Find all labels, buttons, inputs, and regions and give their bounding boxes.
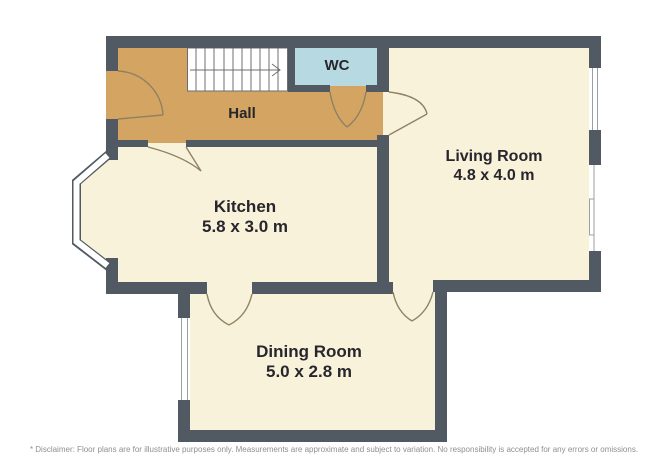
kitchen-name: Kitchen	[202, 197, 288, 217]
living-room-patio-door	[589, 165, 601, 251]
living-room-name: Living Room	[446, 148, 543, 167]
disclaimer-text: * Disclaimer: Floor plans are for illust…	[0, 445, 668, 454]
dining-room-window	[178, 318, 190, 400]
room-label-dining-room: Dining Room 5.0 x 2.8 m	[256, 342, 362, 382]
front-door-opening	[106, 71, 118, 119]
room-label-living-room: Living Room 4.8 x 4.0 m	[446, 148, 543, 186]
living-room-dimensions: 4.8 x 4.0 m	[446, 167, 543, 186]
stairs	[188, 48, 288, 91]
living-room-window	[589, 68, 601, 130]
room-label-hall: Hall	[228, 105, 256, 123]
dining-room-dimensions: 5.0 x 2.8 m	[256, 362, 362, 382]
dining-room-name: Dining Room	[256, 342, 362, 362]
room-label-wc: WC	[325, 57, 350, 75]
kitchen-dimensions: 5.8 x 3.0 m	[202, 217, 288, 237]
room-label-kitchen: Kitchen 5.8 x 3.0 m	[202, 197, 288, 237]
